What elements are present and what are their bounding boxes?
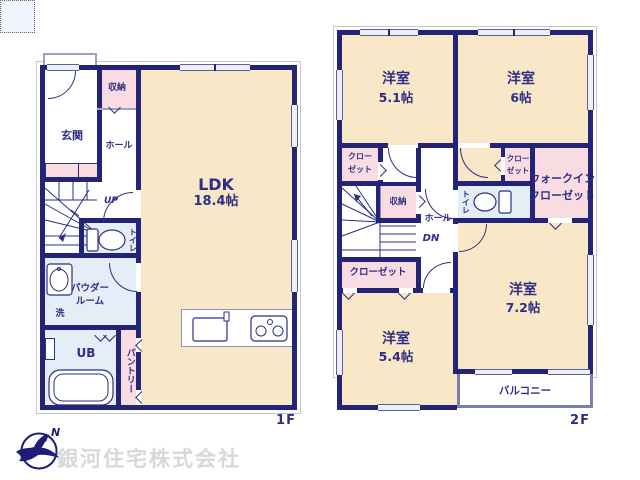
- label-room-5-4: 洋室: [346, 330, 446, 348]
- wall: [136, 292, 141, 338]
- wall: [40, 325, 141, 330]
- window: [378, 404, 420, 411]
- compass-icon: N: [15, 424, 63, 474]
- label-room-5-4-size: 5.4帖: [346, 349, 446, 365]
- label-closet-south: クローゼット: [336, 267, 420, 279]
- genkan-step-divider: [78, 163, 79, 178]
- label-room-5-1-size: 5.1帖: [346, 90, 446, 106]
- company-watermark: 銀河住宅株式会社: [57, 443, 241, 473]
- label-ub: UB: [64, 346, 108, 362]
- label-toilet-2f: トイレ: [460, 190, 470, 214]
- label-powder: パウダー ルーム: [58, 283, 122, 309]
- toilet-fixture-2f: [472, 189, 514, 216]
- label-room-7-2: 洋室: [468, 281, 578, 299]
- wall: [40, 177, 102, 182]
- wall: [40, 253, 141, 258]
- label-pantry: パントリー: [123, 348, 135, 393]
- wall: [453, 252, 458, 374]
- label-room-6: 洋室: [471, 70, 571, 88]
- genkan-step: [45, 163, 100, 178]
- bathtub: [48, 369, 114, 406]
- label-closet-nw: クロー ゼット: [338, 151, 382, 177]
- wall: [40, 405, 297, 410]
- wall: [79, 218, 84, 258]
- balcony-wall: [457, 374, 460, 408]
- label-storage-1f: 収納: [95, 83, 139, 95]
- label-storage-2f: 収納: [376, 197, 420, 208]
- compass-north-label: N: [51, 426, 60, 439]
- wall: [116, 330, 121, 405]
- floorplan-image: 玄関 収納 ホール LDK 18.4帖 UP トイレ パウダー ルーム 洗 UB…: [0, 0, 640, 480]
- label-laundry: 洗: [46, 309, 74, 321]
- wall: [376, 182, 421, 186]
- shower-unit: [45, 338, 55, 360]
- balcony-wall: [457, 405, 593, 408]
- balcony-opening: [475, 369, 512, 375]
- room-5-4-door-opening: [423, 288, 450, 293]
- label-room-5-1: 洋室: [346, 70, 446, 88]
- window-tick: [388, 29, 390, 36]
- wall: [418, 143, 458, 148]
- window: [587, 255, 594, 325]
- label-dn: DN: [420, 232, 442, 245]
- window: [291, 105, 298, 147]
- toilet-fixture-1f: [85, 226, 133, 254]
- label-room-6-size: 6帖: [471, 90, 571, 106]
- label-balcony: バルコニー: [470, 385, 580, 399]
- window: [587, 55, 594, 110]
- wall: [453, 30, 458, 190]
- wall: [337, 257, 421, 262]
- label-hall-2f: ホール: [414, 214, 462, 226]
- label-ldk: LDK: [166, 175, 266, 196]
- balcony-opening: [548, 369, 590, 375]
- label-toilet-1f: トイレ: [127, 228, 137, 252]
- label-ldk-size: 18.4帖: [166, 194, 266, 211]
- room-7-2-door-opening: [453, 224, 458, 252]
- kitchen-counter: [181, 309, 293, 347]
- window: [291, 240, 298, 292]
- window-tick: [214, 64, 216, 71]
- label-genkan: 玄関: [50, 129, 94, 143]
- laundry-space: [0, 0, 35, 33]
- room-ldk: [141, 70, 292, 405]
- wall: [136, 352, 141, 390]
- label-wic: ウォークイン クローゼット: [512, 170, 612, 204]
- window: [336, 70, 343, 120]
- label-floor1: 1F: [272, 413, 300, 430]
- balcony-wall: [590, 374, 593, 408]
- label-hall-1f: ホール: [95, 141, 143, 153]
- window: [336, 330, 343, 375]
- label-floor2: 2F: [566, 413, 594, 430]
- label-up: UP: [101, 196, 121, 208]
- window-tick: [513, 29, 515, 36]
- entrance-door-window: [47, 64, 79, 71]
- wall: [40, 65, 45, 410]
- label-room-7-2-size: 7.2帖: [468, 300, 578, 316]
